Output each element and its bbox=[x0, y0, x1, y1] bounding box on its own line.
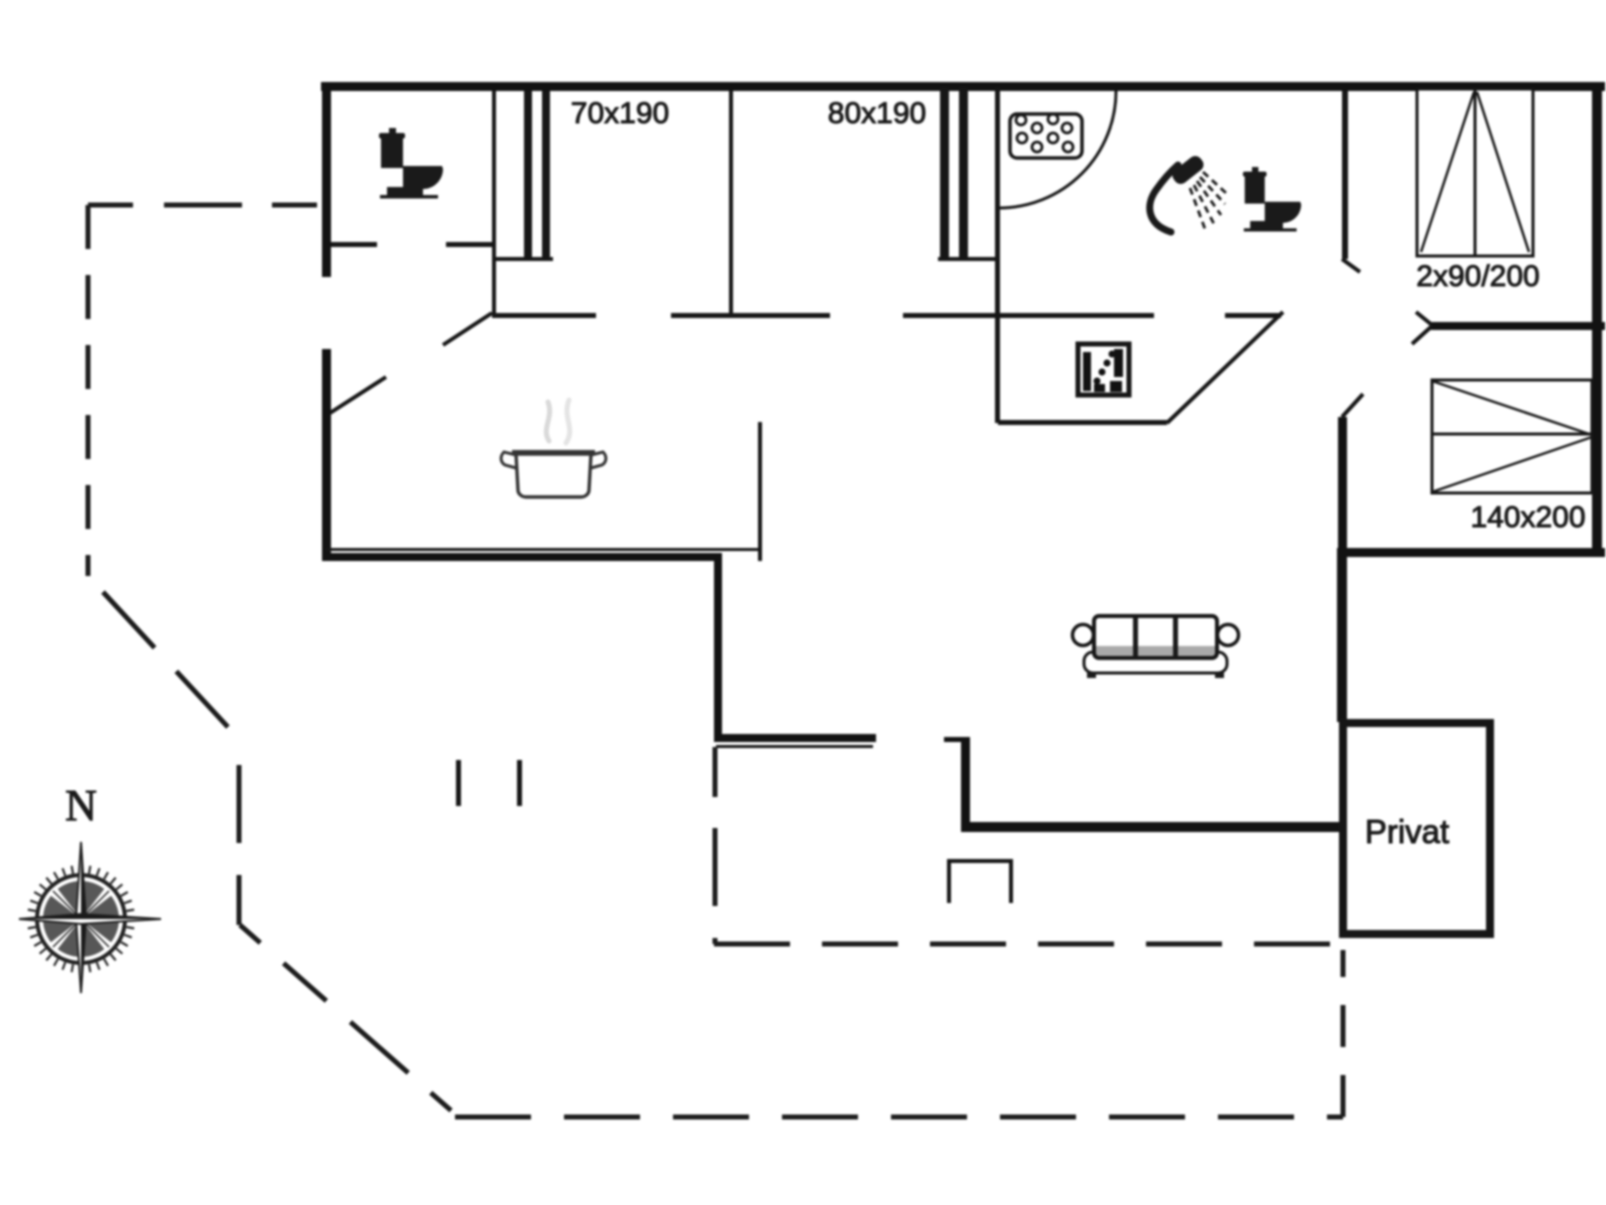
svg-text:140x200: 140x200 bbox=[1470, 501, 1585, 534]
svg-text:2x90/200: 2x90/200 bbox=[1416, 260, 1539, 293]
svg-text:70x190: 70x190 bbox=[571, 97, 669, 130]
svg-text:N: N bbox=[65, 781, 97, 830]
svg-text:Privat: Privat bbox=[1365, 813, 1449, 850]
svg-text:80x190: 80x190 bbox=[828, 97, 926, 130]
